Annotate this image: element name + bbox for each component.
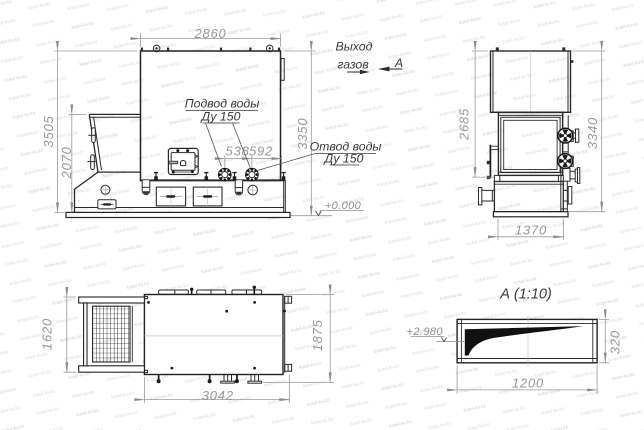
svg-text:320: 320	[608, 330, 623, 354]
svg-text:1875: 1875	[310, 319, 325, 351]
svg-text:3350: 3350	[295, 118, 310, 150]
svg-text:3505: 3505	[41, 115, 56, 147]
svg-text:Выход: Выход	[336, 40, 373, 54]
svg-text:3042: 3042	[202, 388, 234, 403]
svg-text:1200: 1200	[512, 375, 544, 390]
svg-text:Ду 150: Ду 150	[200, 110, 241, 124]
svg-text:2685: 2685	[457, 108, 472, 141]
svg-text:А: А	[394, 56, 403, 70]
svg-text:2070: 2070	[59, 146, 74, 179]
svg-text:1620: 1620	[40, 318, 55, 350]
svg-text:3340: 3340	[585, 117, 600, 149]
svg-text:1370: 1370	[515, 222, 547, 237]
svg-text:592: 592	[249, 143, 273, 158]
svg-text:Подвод воды: Подвод воды	[185, 97, 260, 111]
svg-text:газов: газов	[337, 58, 369, 72]
svg-text:А (1:10): А (1:10)	[499, 287, 552, 303]
svg-text:2860: 2860	[193, 26, 226, 41]
